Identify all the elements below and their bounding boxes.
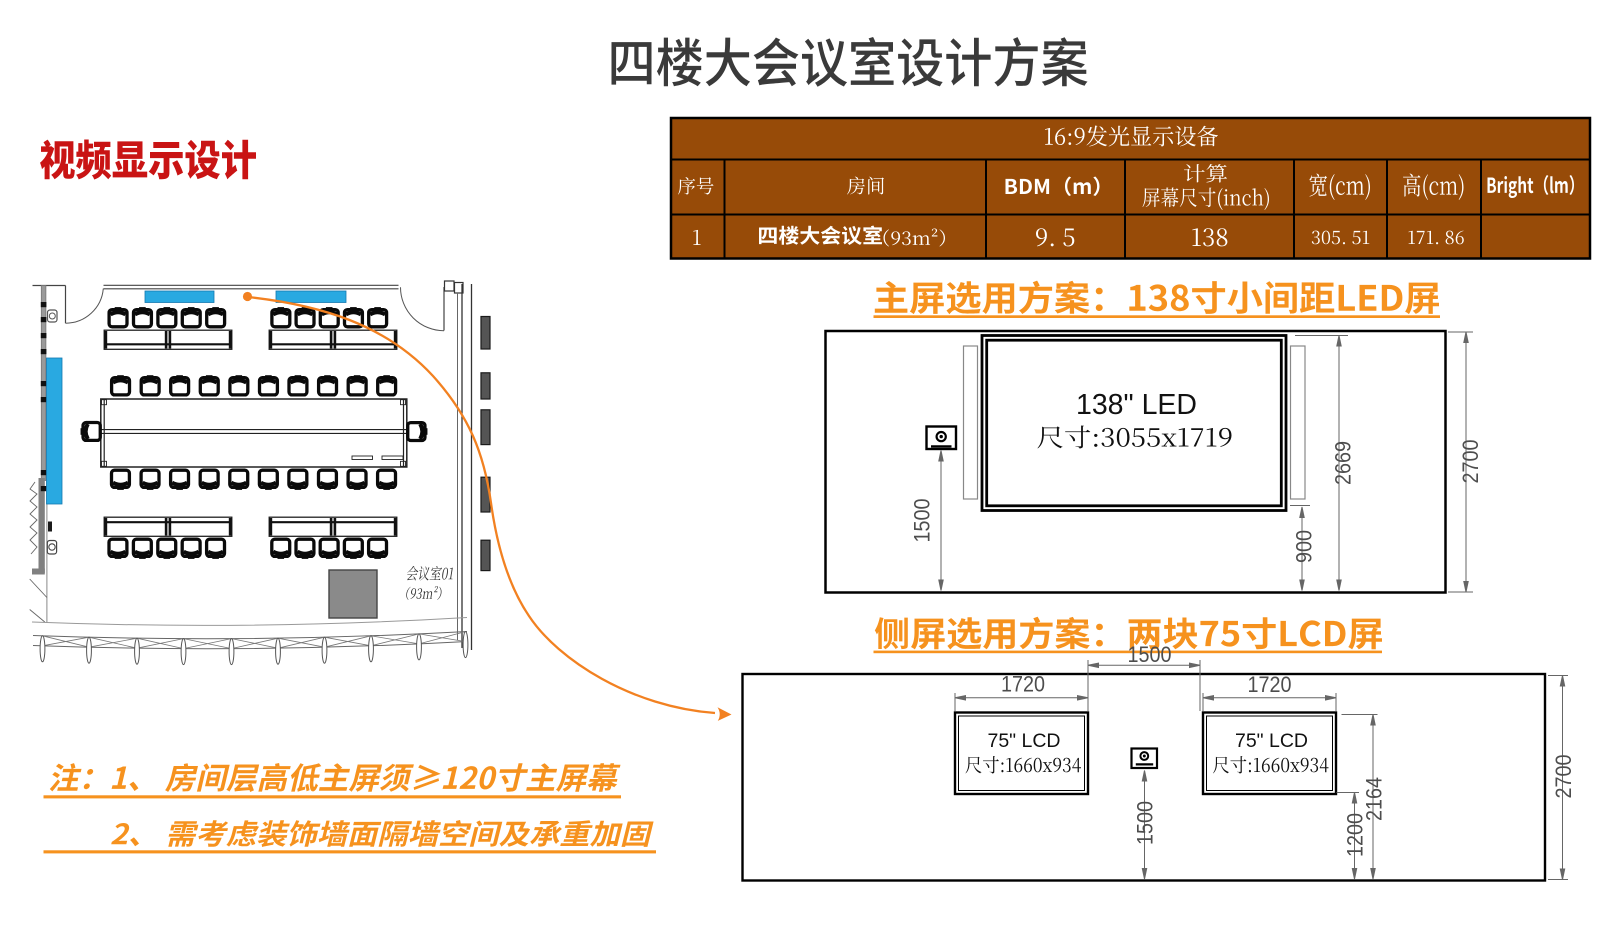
svg-text:2700: 2700 [1458, 440, 1483, 484]
svg-text:1500: 1500 [910, 499, 935, 543]
svg-text:2164: 2164 [1362, 777, 1387, 821]
svg-text:1720: 1720 [1001, 672, 1045, 697]
svg-text:75" LCD: 75" LCD [1235, 730, 1308, 752]
svg-text:75" LCD: 75" LCD [987, 730, 1060, 752]
svg-text:1500: 1500 [1128, 642, 1172, 667]
svg-text:1500: 1500 [1133, 801, 1158, 845]
svg-text:900: 900 [1292, 530, 1317, 563]
svg-text:138" LED: 138" LED [1076, 389, 1197, 421]
svg-text:1720: 1720 [1248, 672, 1292, 697]
svg-text:2700: 2700 [1551, 755, 1576, 799]
svg-text:2669: 2669 [1331, 441, 1356, 485]
